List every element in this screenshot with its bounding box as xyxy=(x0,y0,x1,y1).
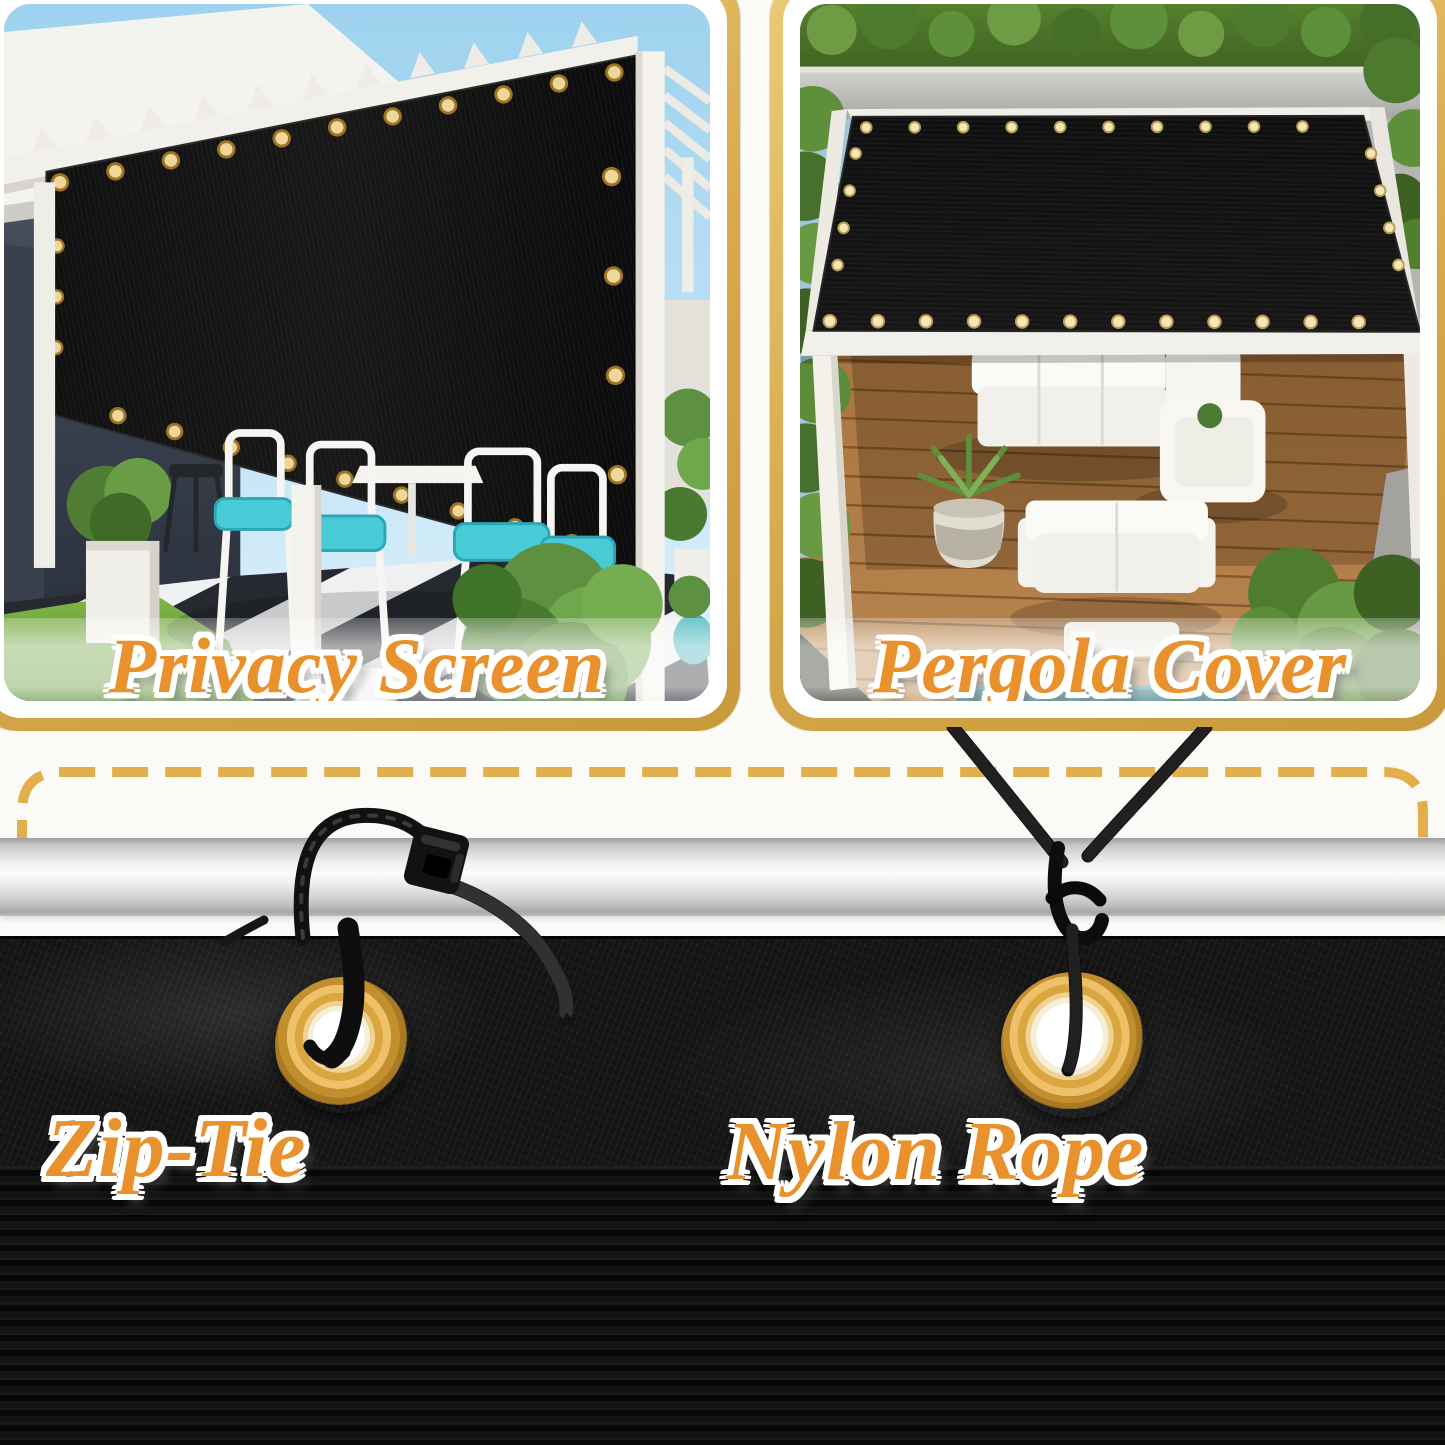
mounting-pole xyxy=(0,838,1445,916)
pergola-cover-mesh xyxy=(813,116,1420,332)
installation-section: Zip-Tie Nylon Rope xyxy=(0,731,1445,1445)
product-image: Privacy Screen xyxy=(0,0,1445,1445)
nylon-rope-label: Nylon Rope xyxy=(726,1103,1144,1200)
panel-pergola-cover: Pergola Cover xyxy=(770,0,1445,731)
wall-coping xyxy=(800,67,1420,73)
grommet-ring-icon xyxy=(275,977,411,1113)
panel-inner-frame: Pergola Cover xyxy=(783,0,1437,718)
grommet-ring-icon xyxy=(1001,972,1147,1118)
zip-tie-label: Zip-Tie xyxy=(46,1100,306,1197)
privacy-screen-photo: Privacy Screen xyxy=(4,4,710,701)
pergola-cover-label: Pergola Cover xyxy=(873,621,1347,702)
privacy-screen-scene xyxy=(4,4,710,701)
pergola-cover-label-band: Pergola Cover xyxy=(800,618,1420,701)
shade-mesh-fabric-ribbed xyxy=(0,1166,1445,1445)
pergola-cover-photo: Pergola Cover xyxy=(800,4,1420,701)
panel-privacy-screen: Privacy Screen xyxy=(0,0,740,731)
panel-inner-frame: Privacy Screen xyxy=(0,0,727,718)
pergola-cover-scene xyxy=(800,4,1420,701)
privacy-screen-label: Privacy Screen xyxy=(108,621,605,702)
privacy-screen-label-band: Privacy Screen xyxy=(4,618,710,701)
